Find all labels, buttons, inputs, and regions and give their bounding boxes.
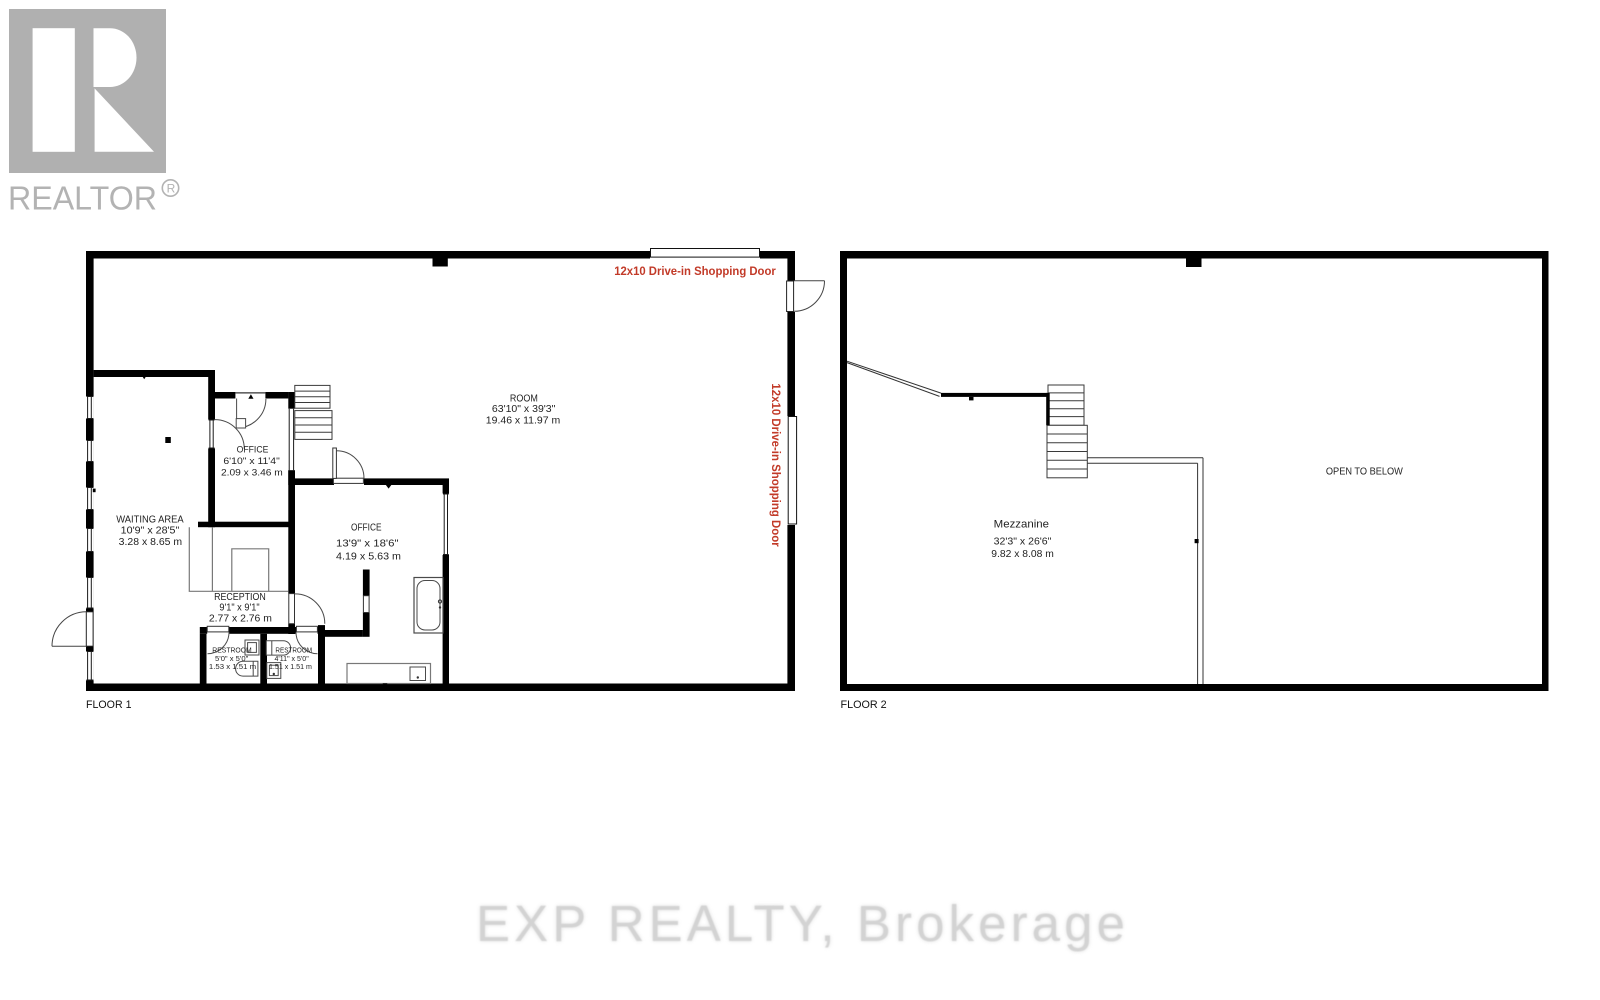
svg-text:2.09 x 3.46 m: 2.09 x 3.46 m (221, 468, 283, 479)
svg-text:2.77 x 2.76 m: 2.77 x 2.76 m (209, 614, 272, 625)
svg-text:OFFICE: OFFICE (351, 521, 382, 533)
svg-text:Mezzanine: Mezzanine (994, 519, 1049, 531)
svg-text:FLOOR 2: FLOOR 2 (841, 699, 887, 711)
svg-text:12x10 Drive-in Shopping Door: 12x10 Drive-in Shopping Door (769, 383, 781, 547)
svg-text:3.28 x 8.65 m: 3.28 x 8.65 m (119, 537, 182, 548)
svg-text:OPEN TO BELOW: OPEN TO BELOW (1326, 467, 1404, 478)
svg-text:1.51 x 1.51 m: 1.51 x 1.51 m (269, 662, 312, 671)
svg-text:OFFICE: OFFICE (237, 445, 269, 456)
svg-text:12x10 Drive-in Shopping Door: 12x10 Drive-in Shopping Door (614, 266, 776, 278)
svg-text:REALTOR: REALTOR (8, 180, 157, 217)
svg-text:WAITING AREA: WAITING AREA (116, 514, 184, 525)
svg-text:9'1" x 9'1": 9'1" x 9'1" (219, 602, 260, 613)
svg-text:ROOM: ROOM (510, 394, 538, 405)
svg-text:10'9" x 28'5": 10'9" x 28'5" (121, 526, 180, 537)
svg-text:1.53 x 1.51 m: 1.53 x 1.51 m (209, 662, 256, 671)
svg-text:13'9" x 18'6": 13'9" x 18'6" (336, 537, 399, 549)
svg-text:R: R (167, 182, 176, 196)
svg-text:9.82 x 8.08 m: 9.82 x 8.08 m (991, 549, 1054, 560)
svg-text:FLOOR 1: FLOOR 1 (86, 699, 132, 711)
svg-text:32'3" x 26'6": 32'3" x 26'6" (994, 536, 1052, 547)
svg-text:4.19 x 5.63 m: 4.19 x 5.63 m (336, 550, 401, 562)
svg-text:6'10" x 11'4": 6'10" x 11'4" (223, 456, 279, 467)
svg-text:63'10" x 39'3": 63'10" x 39'3" (492, 404, 556, 415)
svg-text:19.46 x 11.97 m: 19.46 x 11.97 m (486, 416, 560, 427)
